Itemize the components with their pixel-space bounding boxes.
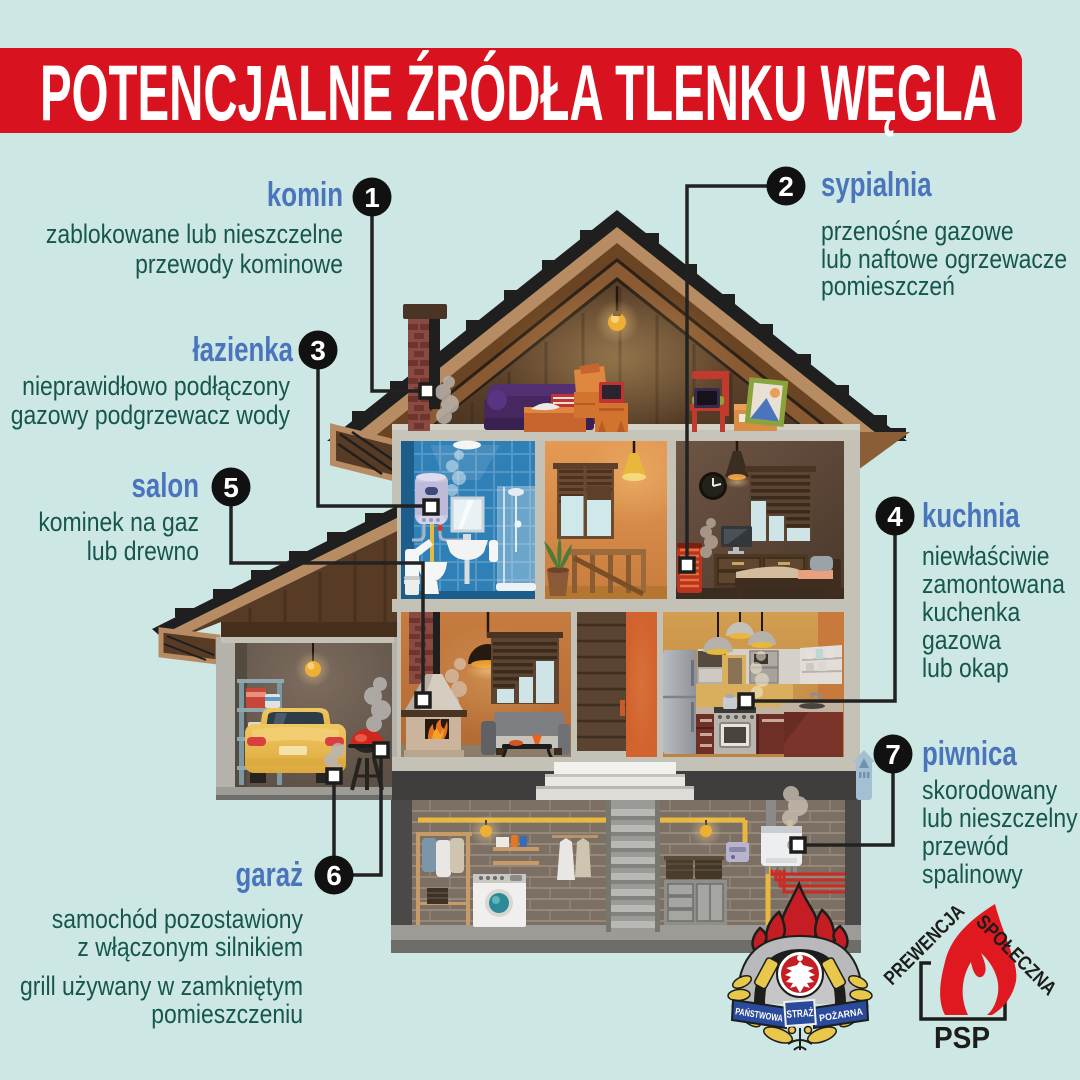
svg-text:z włączonym silnikiem: z włączonym silnikiem xyxy=(77,932,303,962)
svg-text:spalinowy: spalinowy xyxy=(922,859,1023,889)
svg-text:kuchnia: kuchnia xyxy=(922,498,1020,535)
svg-text:przenośne gazowe: przenośne gazowe xyxy=(821,216,1014,246)
svg-text:3: 3 xyxy=(310,335,326,366)
svg-text:kominek na gaz: kominek na gaz xyxy=(38,507,199,537)
svg-text:5: 5 xyxy=(223,472,239,503)
svg-text:niewłaściwie: niewłaściwie xyxy=(922,541,1049,571)
svg-text:4: 4 xyxy=(887,501,903,532)
svg-text:7: 7 xyxy=(885,739,901,770)
svg-text:gazowa: gazowa xyxy=(922,625,1001,655)
svg-text:zablokowane lub nieszczelne: zablokowane lub nieszczelne xyxy=(46,219,343,249)
svg-text:przewody kominowe: przewody kominowe xyxy=(135,249,343,279)
svg-text:sypialnia: sypialnia xyxy=(821,167,932,204)
svg-text:samochód pozostawiony: samochód pozostawiony xyxy=(52,904,304,934)
svg-text:grill używany w zamkniętym: grill używany w zamkniętym xyxy=(20,971,303,1001)
svg-text:komin: komin xyxy=(267,177,343,214)
svg-text:lub okap: lub okap xyxy=(922,653,1009,683)
svg-text:pomieszczeniu: pomieszczeniu xyxy=(151,999,303,1029)
svg-text:lub drewno: lub drewno xyxy=(87,536,199,566)
svg-text:garaż: garaż xyxy=(236,857,303,894)
svg-text:1: 1 xyxy=(364,182,380,213)
svg-text:gazowy podgrzewacz wody: gazowy podgrzewacz wody xyxy=(11,400,291,430)
svg-text:2: 2 xyxy=(778,171,794,202)
svg-text:pomieszczeń: pomieszczeń xyxy=(821,271,955,301)
svg-text:salon: salon xyxy=(132,468,199,505)
svg-text:piwnica: piwnica xyxy=(922,736,1017,773)
svg-text:zamontowana: zamontowana xyxy=(922,569,1065,599)
svg-text:6: 6 xyxy=(326,860,342,891)
svg-text:lub nieszczelny: lub nieszczelny xyxy=(922,803,1078,833)
svg-text:STRAŻ: STRAŻ xyxy=(786,1006,814,1021)
svg-text:kuchenka: kuchenka xyxy=(922,597,1020,627)
svg-text:przewód: przewód xyxy=(922,831,1009,861)
svg-text:skorodowany: skorodowany xyxy=(922,775,1058,805)
svg-text:nieprawidłowo podłączony: nieprawidłowo podłączony xyxy=(22,371,290,401)
svg-text:lub naftowe ogrzewacze: lub naftowe ogrzewacze xyxy=(821,244,1067,274)
svg-text:POTENCJALNE ŹRÓDŁA TLENKU WĘGL: POTENCJALNE ŹRÓDŁA TLENKU WĘGLA xyxy=(40,48,997,137)
svg-text:łazienka: łazienka xyxy=(192,332,293,369)
svg-text:PSP: PSP xyxy=(934,1020,990,1055)
